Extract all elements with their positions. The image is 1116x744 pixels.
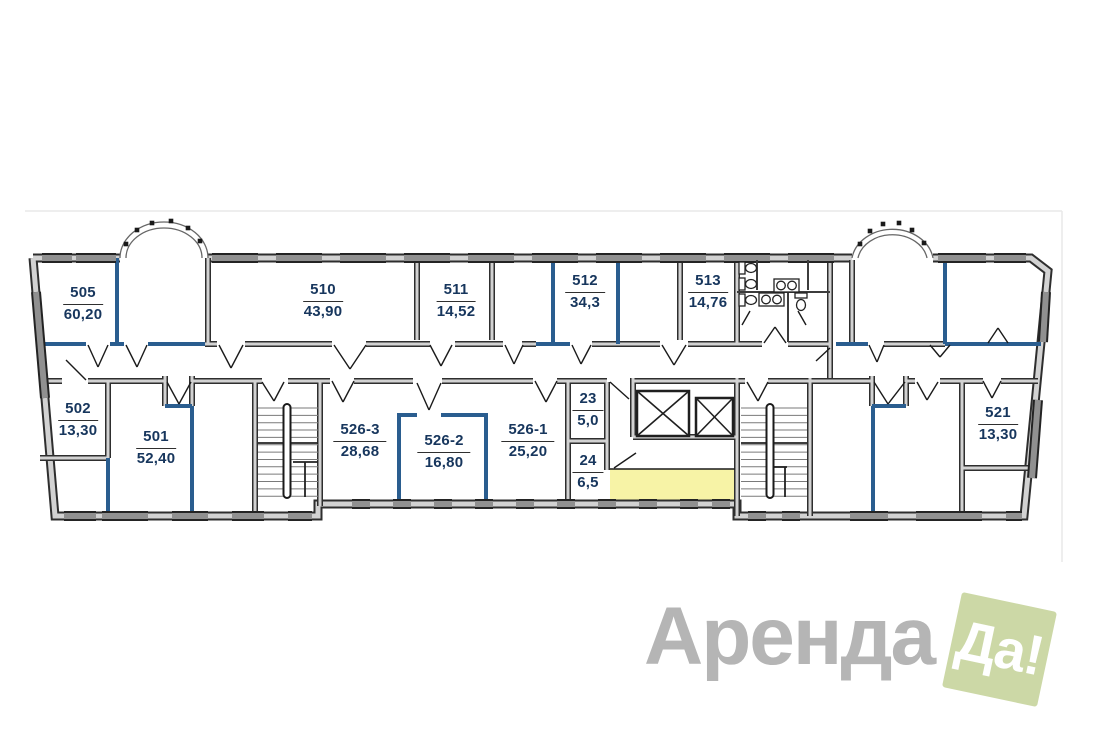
bay-window-arcs bbox=[120, 222, 933, 258]
room-label-510: 51043,90 bbox=[303, 281, 343, 322]
watermark-badge-text: Да! bbox=[951, 606, 1049, 688]
floor-plan-drawing bbox=[0, 0, 1116, 744]
room-label-513: 51314,76 bbox=[688, 272, 728, 313]
room-label-501: 50152,40 bbox=[136, 428, 176, 469]
elevator-shafts bbox=[637, 391, 733, 436]
floor-plan-page: 50560,20 51043,90 51114,52 51234,3 51314… bbox=[0, 0, 1116, 744]
room-label-526-2: 526-216,80 bbox=[417, 432, 470, 473]
interior-walls bbox=[36, 219, 1046, 516]
watermark-badge: Да! bbox=[942, 592, 1057, 707]
sink-icon bbox=[759, 279, 799, 306]
room-label-23: 235,0 bbox=[572, 390, 603, 431]
highlighted-corridor bbox=[610, 469, 735, 504]
outer-walls bbox=[33, 258, 1048, 516]
stairwell-left-rail bbox=[284, 404, 291, 498]
room-label-24: 246,5 bbox=[572, 452, 603, 493]
room-label-511: 51114,52 bbox=[437, 281, 476, 322]
stairwell-right-rail bbox=[767, 404, 774, 498]
room-label-502: 50213,30 bbox=[58, 400, 98, 441]
bathroom-block bbox=[737, 260, 830, 342]
room-label-512: 51234,3 bbox=[565, 272, 605, 313]
room-label-526-1: 526-125,20 bbox=[501, 421, 554, 462]
room-label-505: 50560,20 bbox=[63, 284, 103, 325]
room-label-526-3: 526-328,68 bbox=[333, 421, 386, 462]
watermark-brand-text: Аренда bbox=[644, 596, 934, 678]
room-label-521: 52113,30 bbox=[978, 404, 1018, 445]
